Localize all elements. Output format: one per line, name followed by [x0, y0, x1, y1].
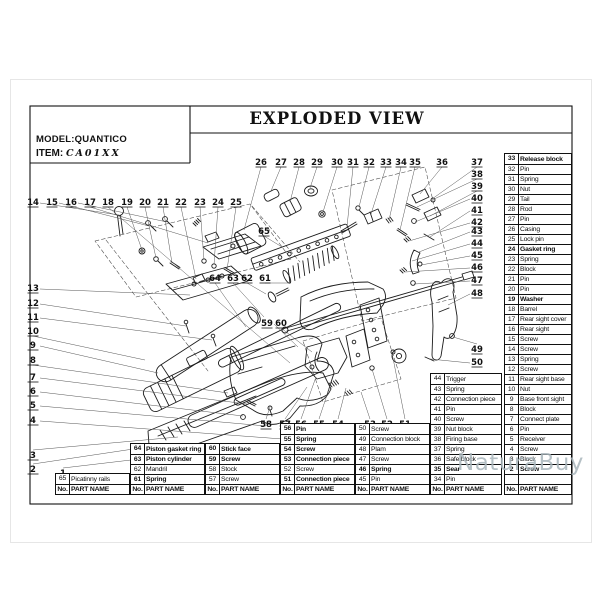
part-number: 17	[505, 315, 519, 324]
part-name: Sear	[445, 465, 501, 474]
part-number: 12	[505, 365, 519, 374]
part-name: Rear sight base	[519, 375, 571, 384]
part-name: Screw	[370, 425, 429, 434]
part-number: 36	[431, 455, 445, 464]
part-number: 4	[505, 445, 519, 454]
leader-line-44	[412, 244, 470, 261]
part-name: Spring	[445, 385, 501, 394]
callout-19: 19	[121, 198, 133, 208]
callout-48: 48	[471, 289, 483, 299]
part-row: 13Spring	[505, 354, 571, 364]
leader-line-52	[372, 369, 387, 419]
callout-21: 21	[157, 198, 169, 208]
part-number: 16	[505, 325, 519, 334]
part-name: Pin	[519, 285, 571, 294]
part-name: Release block	[519, 155, 571, 164]
page-title: EXPLODED VIEW	[190, 109, 484, 128]
part-name: PART NAME	[295, 485, 354, 494]
leader-line-29	[310, 167, 317, 188]
part-name: Pin	[295, 425, 354, 434]
callout-18: 18	[102, 198, 114, 208]
part-row	[505, 474, 571, 484]
part-number: 5	[505, 435, 519, 444]
leader-line-56	[301, 377, 316, 419]
part-number: 21	[505, 275, 519, 284]
part-number: 29	[505, 195, 519, 204]
callout-50: 50	[471, 358, 483, 368]
leader-line-48	[448, 294, 470, 305]
part-row: 10Nut	[505, 384, 571, 394]
part-row: 37Spring	[431, 444, 501, 454]
leader-line-22	[181, 207, 196, 279]
receiver-part	[186, 356, 330, 430]
callout-36: 36	[436, 158, 448, 168]
part-name: Rear sight cover	[519, 315, 571, 324]
leader-line-32	[359, 167, 369, 207]
part-name: Connection piece	[295, 475, 354, 484]
part-number: 57	[206, 475, 220, 484]
part-row: 61Spring	[131, 474, 204, 484]
part-name: Connection piece	[445, 395, 501, 404]
part-row: 56Pin	[281, 424, 354, 434]
callout-7: 7	[30, 373, 36, 383]
part-row: 17Rear sight cover	[505, 314, 571, 324]
callout-37: 37	[471, 158, 483, 168]
leader-line-33	[371, 167, 386, 214]
main-parts-table: 33Release block32Pin31Spring30Nut29Tail2…	[504, 153, 572, 495]
part-row: 30Nut	[505, 184, 571, 194]
part-name: Plam	[370, 445, 429, 454]
part-row: 53Connection piece	[281, 454, 354, 464]
part-row: 51Connection piece	[281, 474, 354, 484]
part-name: Screw	[295, 445, 354, 454]
part-row: 15Screw	[505, 334, 571, 344]
callout-39: 39	[471, 182, 483, 192]
leader-line-31	[347, 167, 353, 227]
part-number: 34	[431, 475, 445, 484]
callout-16: 16	[65, 198, 77, 208]
part-number: 15	[505, 335, 519, 344]
part-row: 38Firing base	[431, 434, 501, 444]
leader-line-46	[405, 268, 470, 272]
part-number: 14	[505, 345, 519, 354]
leader-line-54	[338, 388, 346, 419]
part-number: 54	[281, 445, 295, 454]
part-number: 49	[356, 435, 370, 444]
part-number: 9	[505, 395, 519, 404]
part-name: Spring	[370, 465, 429, 474]
piston-group-table: 64Piston gasket ring63Piston cylinder62M…	[130, 443, 205, 495]
part-row: 58Stock	[206, 464, 279, 474]
part-name: Spring	[519, 175, 571, 184]
table-footer: No.PART NAME	[206, 484, 279, 494]
part-name: Tail	[519, 195, 571, 204]
part-number: 45	[356, 475, 370, 484]
part-row: 6Pin	[505, 424, 571, 434]
callout-14: 14	[27, 198, 39, 208]
callout-8: 8	[30, 356, 36, 366]
callout-33: 33	[380, 158, 392, 168]
part-name: Block	[519, 265, 571, 274]
leader-line-38	[417, 179, 477, 207]
callout-40: 40	[471, 194, 483, 204]
leader-line-21	[163, 207, 172, 263]
part-number: 46	[356, 465, 370, 474]
leader-line-35	[400, 167, 415, 230]
part-row: 42Connection piece	[431, 394, 501, 404]
part-number: 55	[281, 435, 295, 444]
part-number: 35	[431, 465, 445, 474]
part-row: 59Screw	[206, 454, 279, 464]
leader-line-36	[420, 167, 442, 194]
part-name: Spring	[445, 445, 501, 454]
leader-line-53	[361, 392, 370, 419]
part-name: Screw	[519, 365, 571, 374]
callout-27: 27	[275, 158, 287, 168]
part-name: Pin	[519, 425, 571, 434]
picatinny-rail-table: 65Picatinny railsNo.PART NAME	[55, 473, 130, 495]
part-name: Spring	[295, 435, 354, 444]
part-number: No.	[356, 485, 370, 494]
callout-58: 58	[260, 420, 272, 430]
part-number: 65	[56, 474, 70, 484]
table-footer: No.PART NAME	[356, 484, 429, 494]
part-number: 61	[131, 475, 145, 484]
part-row: 41Pin	[431, 404, 501, 414]
part-row: 19Washer	[505, 294, 571, 304]
part-row: 5Receiver	[505, 434, 571, 444]
part-name: PART NAME	[70, 485, 129, 494]
callout-3: 3	[30, 451, 36, 461]
callout-49: 49	[471, 345, 483, 355]
callout-41: 41	[471, 206, 483, 216]
leader-line-7	[40, 378, 247, 404]
leader-line-27	[271, 167, 281, 191]
callout-32: 32	[363, 158, 375, 168]
part-name: Screw	[295, 465, 354, 474]
callout-46: 46	[471, 263, 483, 273]
part-number: 24	[505, 245, 519, 254]
part-number: 11	[505, 375, 519, 384]
rear-sight-hardware	[115, 207, 262, 347]
stock-group-table: 60Stick face59Screw58Stock57ScrewNo.PART…	[205, 443, 280, 495]
leader-line-8	[33, 365, 228, 393]
part-name: Rear sight	[519, 325, 571, 334]
part-row: 32Pin	[505, 164, 571, 174]
cocking-rod-part	[282, 271, 474, 333]
part-name: Base front sight	[519, 395, 571, 404]
part-name: Nut	[519, 185, 571, 194]
part-name: Gasket ring	[519, 245, 571, 254]
part-row: 49Connection block	[356, 434, 429, 444]
part-number: 56	[281, 424, 295, 434]
part-name: Connect plate	[519, 415, 571, 424]
item-label: ITEM:	[36, 148, 63, 159]
part-row: 14Screw	[505, 344, 571, 354]
part-name: Pin	[519, 275, 571, 284]
callout-62: 62	[241, 274, 253, 284]
part-number: 19	[505, 295, 519, 304]
part-row: 29Tail	[505, 194, 571, 204]
exploded-view-sheet: 1415161718192021222324252627282930313233…	[0, 0, 600, 600]
leader-line-49	[453, 337, 477, 344]
part-row: 27Pin	[505, 214, 571, 224]
leader-line-5	[40, 406, 266, 426]
callout-25: 25	[230, 198, 242, 208]
leader-line-26	[244, 167, 261, 230]
part-name: Screw	[519, 345, 571, 354]
part-name: Connection piece	[295, 455, 354, 464]
leader-line-40	[415, 199, 470, 222]
part-number: 8	[505, 405, 519, 414]
part-row: 54Screw	[281, 444, 354, 454]
part-number: No.	[281, 485, 295, 494]
callout-34: 34	[395, 158, 407, 168]
part-name: Screw	[519, 465, 571, 474]
part-name: Spring	[519, 355, 571, 364]
part-number: 51	[281, 475, 295, 484]
part-name: Safe block	[445, 455, 501, 464]
part-row: 2Screw	[505, 464, 571, 474]
part-name: Piston cylinder	[145, 455, 204, 464]
model-line: MODEL:QUANTICO	[36, 134, 127, 145]
part-row: 39Nut block	[431, 424, 501, 434]
model-value: QUANTICO	[75, 134, 127, 145]
leader-line-42	[409, 223, 470, 241]
callout-20: 20	[139, 198, 151, 208]
part-number: 26	[505, 225, 519, 234]
part-number: 47	[356, 455, 370, 464]
part-name: Block	[519, 405, 571, 414]
callout-47: 47	[471, 276, 483, 286]
leader-line-62	[247, 283, 266, 294]
part-row: 63Piston cylinder	[131, 454, 204, 464]
part-name: Screw	[370, 455, 429, 464]
part-number: 3	[505, 455, 519, 464]
leader-line-6	[40, 392, 243, 416]
part-row: 62Mandril	[131, 464, 204, 474]
part-number: 25	[505, 235, 519, 244]
part-row: 25Lock pin	[505, 234, 571, 244]
part-row: 24Gasket ring	[505, 244, 571, 254]
leader-line-19	[127, 207, 142, 250]
trigger-group-table: 44Trigger43Spring42Connection piece41Pin…	[430, 373, 502, 495]
part-name: PART NAME	[445, 485, 501, 494]
part-number: 44	[431, 374, 445, 384]
part-name: Pin	[519, 165, 571, 174]
callout-65: 65	[258, 227, 270, 237]
leader-line-50	[430, 359, 470, 363]
callout-5: 5	[30, 401, 36, 411]
callout-63: 63	[227, 274, 239, 284]
part-number: No.	[431, 485, 445, 494]
part-name: Firing base	[445, 435, 501, 444]
part-number: No.	[206, 485, 220, 494]
part-row: 44Trigger	[431, 374, 501, 384]
callout-11: 11	[27, 313, 39, 323]
callout-6: 6	[30, 387, 36, 397]
leader-line-28	[290, 167, 299, 202]
part-number: 52	[281, 465, 295, 474]
part-number: 6	[505, 425, 519, 434]
part-row: 65Picatinny rails	[56, 474, 129, 484]
callout-31: 31	[347, 158, 359, 168]
model-label: MODEL:	[36, 134, 75, 145]
part-number: 32	[505, 165, 519, 174]
callout-24: 24	[212, 198, 224, 208]
part-number: 42	[431, 395, 445, 404]
part-row: 21Pin	[505, 274, 571, 284]
part-row: 47Screw	[356, 454, 429, 464]
mandril-part	[267, 288, 289, 303]
callout-38: 38	[471, 170, 483, 180]
part-name: Trigger	[445, 375, 501, 384]
part-number: 33	[505, 154, 519, 164]
part-name: Connection block	[370, 435, 429, 444]
part-row: 33Release block	[505, 154, 571, 164]
table-footer: No.PART NAME	[431, 484, 501, 494]
part-name: Barrel	[519, 305, 571, 314]
leader-line-64	[215, 283, 246, 327]
part-row: 45Pin	[356, 474, 429, 484]
leader-line-57	[285, 387, 307, 419]
part-row: 60Stick face	[206, 444, 279, 454]
part-row: 26Casing	[505, 224, 571, 234]
callout-23: 23	[194, 198, 206, 208]
callout-30: 30	[331, 158, 343, 168]
part-number: 18	[505, 305, 519, 314]
callout-64: 64	[209, 274, 221, 284]
leader-line-4	[40, 421, 296, 440]
callout-22: 22	[175, 198, 187, 208]
table-footer: No.PART NAME	[505, 484, 571, 494]
table-footer: No.PART NAME	[281, 484, 354, 494]
part-name: Washer	[519, 295, 571, 304]
callout-12: 12	[27, 299, 39, 309]
callout-45: 45	[471, 251, 483, 261]
part-name: Nut block	[445, 425, 501, 434]
part-row: 55Spring	[281, 434, 354, 444]
callout-26: 26	[255, 158, 267, 168]
part-number: 23	[505, 255, 519, 264]
leader-line-25	[227, 207, 236, 270]
part-name: Screw	[220, 455, 279, 464]
part-number: No.	[131, 485, 145, 494]
callout-9: 9	[30, 341, 36, 351]
part-name: Picatinny rails	[70, 475, 129, 484]
part-row: 9Base front sight	[505, 394, 571, 404]
part-row: 57Screw	[206, 474, 279, 484]
part-number: 41	[431, 405, 445, 414]
part-name: PART NAME	[145, 485, 204, 494]
part-row: 12Screw	[505, 364, 571, 374]
part-row: 7Connect plate	[505, 414, 571, 424]
part-row: 16Rear sight	[505, 324, 571, 334]
part-row: 3Block	[505, 454, 571, 464]
callout-29: 29	[311, 158, 323, 168]
part-name: Pin	[445, 475, 501, 484]
part-number: 28	[505, 205, 519, 214]
part-row: 48Plam	[356, 444, 429, 454]
part-row: 23Spring	[505, 254, 571, 264]
part-name: Spring	[145, 475, 204, 484]
part-row: 22Block	[505, 264, 571, 274]
part-name: Piston gasket ring	[145, 445, 204, 454]
callout-15: 15	[46, 198, 58, 208]
part-number: 59	[206, 455, 220, 464]
part-number: No.	[505, 485, 519, 494]
part-name: Screw	[220, 475, 279, 484]
part-name: PART NAME	[519, 485, 571, 494]
part-row: 4Screw	[505, 444, 571, 454]
part-number: 63	[131, 455, 145, 464]
part-name: PART NAME	[370, 485, 429, 494]
part-number: 60	[206, 444, 220, 454]
part-number: 27	[505, 215, 519, 224]
leader-line-2	[33, 448, 140, 464]
part-number: No.	[56, 485, 70, 494]
part-number: 20	[505, 285, 519, 294]
leader-line-43	[419, 232, 470, 252]
leader-line-11	[40, 318, 212, 340]
part-number: 37	[431, 445, 445, 454]
part-name: Spring	[519, 255, 571, 264]
part-name: Casing	[519, 225, 571, 234]
part-name: Screw	[519, 335, 571, 344]
leader-line-39	[430, 191, 477, 216]
part-name: Stick face	[220, 445, 279, 454]
callout-10: 10	[27, 327, 39, 337]
part-name: Screw	[519, 445, 571, 454]
part-number: 2	[505, 465, 519, 474]
part-number: 30	[505, 185, 519, 194]
leader-line-13	[40, 289, 190, 295]
part-row: 64Piston gasket ring	[131, 444, 204, 454]
leader-line-45	[421, 256, 470, 265]
piston-cylinder-part	[153, 305, 263, 385]
table-footer: No.PART NAME	[131, 484, 204, 494]
callout-17: 17	[84, 198, 96, 208]
part-number: 53	[281, 455, 295, 464]
callout-35: 35	[409, 158, 421, 168]
part-row: 11Rear sight base	[505, 374, 571, 384]
part-row: 46Spring	[356, 464, 429, 474]
part-number: 7	[505, 415, 519, 424]
part-name: Stock	[220, 465, 279, 474]
part-row: 20Pin	[505, 284, 571, 294]
part-number: 39	[431, 425, 445, 434]
part-number: 10	[505, 385, 519, 394]
item-line: ITEM: CA01XX	[36, 148, 121, 159]
part-number: 22	[505, 265, 519, 274]
callout-2: 2	[30, 465, 36, 475]
callout-28: 28	[293, 158, 305, 168]
callout-4: 4	[30, 416, 36, 426]
callout-61: 61	[259, 274, 271, 284]
part-name: Mandril	[145, 465, 204, 474]
part-number: 43	[431, 385, 445, 394]
part-number: 64	[131, 444, 145, 454]
item-value: CA01XX	[66, 148, 121, 159]
part-row: 18Barrel	[505, 304, 571, 314]
part-row: 43Spring	[431, 384, 501, 394]
callout-60: 60	[275, 319, 287, 329]
table-footer: No.PART NAME	[56, 484, 129, 494]
part-number: 31	[505, 175, 519, 184]
part-name: Receiver	[519, 435, 571, 444]
connection-group-table: 56Pin55Spring54Screw53Connection piece52…	[280, 423, 355, 495]
part-name: Lock pin	[519, 235, 571, 244]
